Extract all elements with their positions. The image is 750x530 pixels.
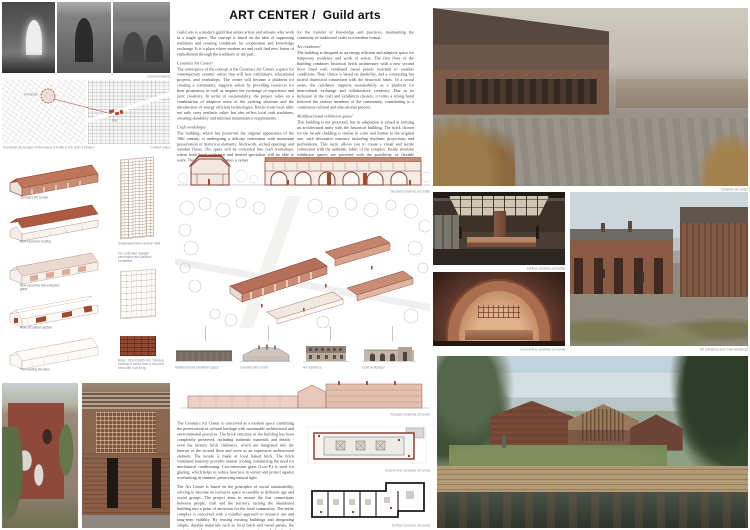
maps-caption: Kronstadt city located on the island of … [3,146,94,150]
elevation-art-residence [303,343,349,363]
render-canal-view [437,356,748,528]
leader-line [205,326,206,341]
intro-paragraph: Guild arts is a modern guild that unites… [177,30,294,57]
photo-ruin-kilns [113,2,170,73]
map-site-label: Site [112,119,117,123]
render-interior2-caption: Ground floor ceramics art center [520,348,565,352]
figure [502,435,506,448]
maps-caption-right: Context plans [151,146,170,150]
render-interior1-caption: 1st floor ceramics art center [526,267,565,271]
screen-wall-note: For controlled daylight penetration and … [118,252,163,263]
photo-ruin-interior-1 [2,2,55,73]
arch-opening-shape [26,20,42,54]
brick-screen-wall-drawing [120,157,154,240]
photo-ruin-exterior [2,383,78,528]
doorway-shape [107,458,118,507]
gabled-building [568,404,640,450]
figure [602,269,605,278]
glass-wall [433,215,459,249]
elevation-label: Art residence [303,366,322,370]
intro-heading: Art residence/ [297,44,414,49]
diagram-step-roof [6,201,106,245]
intro-heading: Multifunctional exhibition space/ [297,114,414,119]
render-courtyard [570,192,748,346]
photos-caption: Current situation [147,75,170,79]
display-tables [467,237,536,247]
shelf-grid [478,305,520,318]
intro-column-2: for the transfer of knowledge and practi… [297,30,414,167]
long-section [265,158,421,186]
sections-drawing [177,149,430,190]
sustainability-text: The Ceramics Art Center is conceived as … [177,421,294,530]
cross-section [189,155,231,185]
grasses [570,300,748,346]
canal-water [437,492,748,528]
diagram-step-complete [6,157,106,201]
facades-caption: Facades ceramics art center [390,413,430,417]
sections-caption: Sections ceramics art center [390,190,430,194]
screen-wall-title: Sustainable Brick Screen Wall [118,242,168,246]
axon-building-ceramics-center [230,258,327,302]
figure [641,272,644,283]
render-facade-detail [82,383,170,528]
diagram-step-label: Ceramics Art Center [20,196,63,200]
elevation-exhibition-space [175,343,233,363]
elevation-label: Ceramics Art Center [240,366,268,370]
grasses [433,101,515,186]
arcade-building [570,229,673,294]
map-annotation-overlay [2,80,170,144]
axon-building-exhibition [267,292,343,324]
page-title: ART CENTER /Guild arts [175,8,435,22]
elevation-label: Multifunctional exhibition space [175,366,234,370]
map-city-label: Kronstadt [24,93,37,97]
elevation-ceramics-center [240,343,292,363]
grasses [691,122,748,186]
leader-line [392,326,393,341]
figure [459,227,462,239]
diagram-step-label: The existing structure [20,368,63,372]
residence-building [680,207,748,296]
leader-line [330,326,331,341]
far-building [616,79,748,107]
brick-texture-photo [120,336,156,356]
figure [536,226,539,239]
photo-ruin-interior-2 [57,2,111,73]
sustainability-paragraph: The Ceramics Art Center is conceived as … [177,421,294,481]
ground-plan-caption: Ground floor ceramics art center [385,469,430,473]
leader-line [268,326,269,341]
intro-paragraph: The centerpiece of the concept is the Ce… [177,67,294,122]
doorway-shape [152,458,161,507]
render-ceramics-art-center [433,8,748,186]
diagram-step-label: New structure/ roofing [20,240,63,244]
page-title-sub: Guild arts [323,8,381,22]
render-interior-first-floor [433,192,565,265]
render-interior-ground-floor [433,272,565,346]
intro-paragraph: The building is designed as an energy ef… [297,50,414,110]
axon-building-residence [325,236,390,266]
intro-heading: Craft workshops/ [177,125,294,130]
facades-drawing [180,378,430,412]
sustainability-paragraph: The Art Center is based on the principle… [177,485,294,530]
diagram-step-glazing [6,245,106,289]
kiln-dome-shape [146,35,163,62]
first-floor-plan [302,479,430,523]
first-plan-caption: 1st floor ceramics art center [391,524,430,528]
intro-column-1: Guild arts is a modern guild that unites… [177,30,294,167]
elevation-label: Craft workshops [362,366,385,370]
render-courtyard-caption: Art residence and Craft workshops [700,348,748,352]
site-axonometric-drawing [175,196,430,328]
ground-floor-plan [302,419,430,467]
presentation-board: { "header": { "title_main": "ART CENTER … [0,0,750,530]
intro-heading: Ceramics Art Center/ [177,61,294,66]
elevation-craft-workshops [362,343,416,363]
figure [634,272,637,283]
kiln-dome-shape [123,32,144,62]
brick-note: Brick / 250x120x65 mm / Manual forming o… [118,359,168,370]
reception-counter [465,330,534,340]
facade-pattern-drawing [120,269,156,320]
arch-doorway-shape [75,18,93,62]
intro-paragraph: for the transfer of knowledge and practi… [297,30,414,41]
page-title-main: ART CENTER / [229,8,315,22]
